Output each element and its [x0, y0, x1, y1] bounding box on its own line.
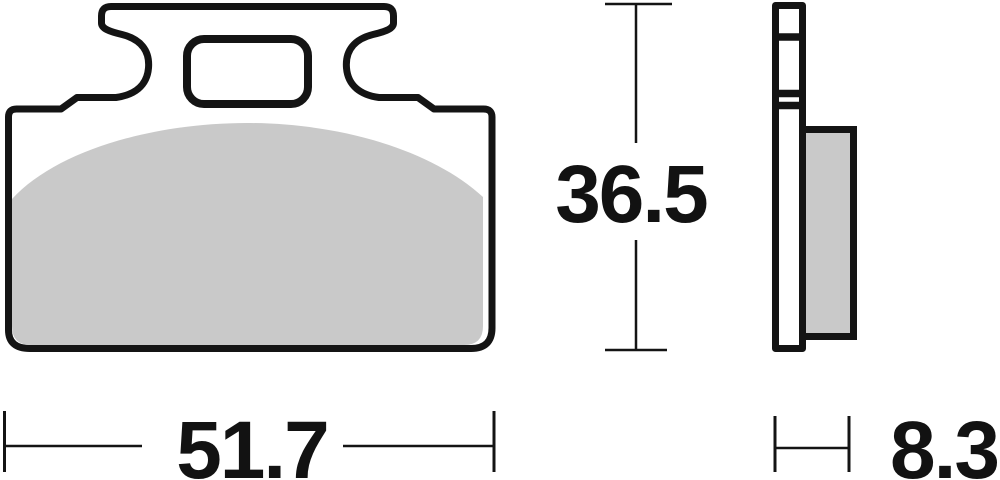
width-dimension: 51.7	[4, 405, 494, 480]
drawing-canvas: 51.7 36.5 8.3	[0, 0, 1000, 480]
brake-pad-drawing: 51.7 36.5 8.3	[0, 0, 1000, 480]
side-view	[772, 6, 854, 349]
thickness-dimension: 8.3	[775, 405, 998, 480]
height-dimension-label: 36.5	[555, 149, 707, 240]
width-dimension-label: 51.7	[176, 405, 328, 480]
thickness-dimension-label: 8.3	[890, 405, 998, 480]
backing-plate-side	[776, 6, 803, 349]
front-view	[9, 7, 493, 349]
mounting-slot-hole	[187, 39, 308, 104]
friction-pad-front	[12, 123, 483, 345]
friction-pad-side	[803, 130, 854, 337]
height-dimension: 36.5	[555, 4, 707, 350]
